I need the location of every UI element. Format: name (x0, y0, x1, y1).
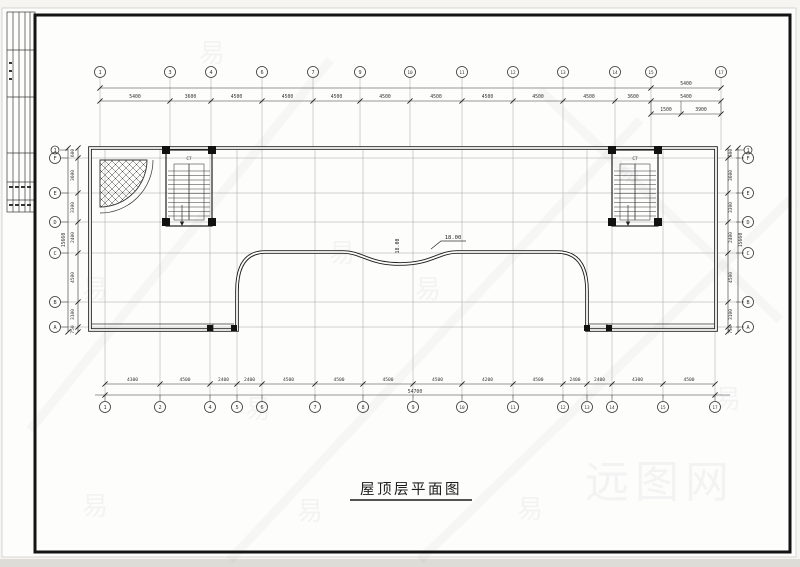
dim-text: 8 (361, 405, 364, 411)
dim-text: 3900 (695, 107, 707, 113)
dim-text: 4500 (683, 377, 694, 383)
stair-label: C7 (632, 156, 638, 162)
dim-text: 5400 (680, 81, 692, 87)
dim-text: 9 (358, 70, 361, 76)
dim-text: 3300 (728, 202, 734, 213)
scan-edge (0, 559, 800, 567)
dim-text: 1500 (660, 107, 672, 113)
glyph-watermark: 易 (82, 492, 108, 522)
dim-text: 4500 (532, 94, 544, 100)
dim-text: 4200 (482, 377, 493, 383)
dim-text: 11 (459, 70, 465, 76)
dim-text: 4500 (231, 94, 243, 100)
dim-text: 4500 (379, 94, 391, 100)
dim-text: 7 (313, 405, 316, 411)
dim-text: 12 (560, 405, 566, 411)
glyph-watermark: 易 (297, 497, 323, 527)
dim-text: 14 (612, 70, 618, 76)
dim-text: 3600 (728, 170, 734, 181)
dim-text: 54700 (408, 389, 423, 395)
column (208, 218, 216, 226)
dim-text: B (53, 300, 56, 306)
dim-text: 5 (235, 405, 238, 411)
dim-text: 12 (510, 70, 516, 76)
dim-text: 1 (103, 405, 106, 411)
dim-text: 3600 (627, 94, 639, 100)
dim-text: 14 (609, 405, 615, 411)
dim-text: 4500 (333, 377, 344, 383)
column (654, 218, 662, 226)
dim-text: 4500 (482, 94, 494, 100)
dim-text: 2400 (728, 232, 734, 243)
column (608, 146, 616, 154)
dim-text: D (53, 220, 56, 226)
dim-text: 15 (648, 70, 654, 76)
glyph-watermark: 易 (199, 39, 225, 69)
dim-text: 4500 (283, 377, 294, 383)
dim-text: C (746, 251, 749, 257)
dim-text: 2 (158, 405, 161, 411)
dim-text: F (746, 156, 749, 162)
dim-text: 6 (260, 70, 263, 76)
dim-text: 13 (584, 405, 590, 411)
dim-text: 4500 (728, 272, 734, 283)
dim-text: 4500 (179, 377, 190, 383)
dim-text: 750 (70, 325, 76, 334)
elevation-flag-text: 18.00 (445, 235, 462, 241)
cad-sheet: 易易易易易易易易易易 54003600450045004500450045 (0, 0, 800, 567)
dim-text: 15660 (61, 233, 67, 248)
dim-text: 11 (510, 405, 516, 411)
stair-label: C7 (186, 156, 192, 162)
dim-text: 4500 (331, 94, 343, 100)
dim-text: 4500 (432, 377, 443, 383)
dim-text: 4500 (282, 94, 294, 100)
dim-text: 2400 (594, 377, 605, 383)
dim-text: D (746, 220, 749, 226)
dim-text: E (746, 191, 749, 197)
dim-text: 4300 (632, 377, 643, 383)
column (208, 146, 216, 154)
dim-text: 4 (208, 405, 211, 411)
column (162, 218, 170, 226)
dim-text: 3100 (70, 309, 76, 320)
dim-text: 6 (260, 405, 263, 411)
dim-text: 750 (728, 325, 734, 334)
dim-text: 2400 (70, 232, 76, 243)
column (608, 218, 616, 226)
dim-text: 10 (407, 70, 413, 76)
dim-text: 4300 (127, 377, 138, 383)
dim-text: 3600 (185, 94, 197, 100)
dim-text: 3100 (728, 309, 734, 320)
dim-text: 3600 (70, 170, 76, 181)
dim-text: 5400 (129, 94, 141, 100)
dim-text: 600 (728, 149, 734, 158)
dim-text: 4500 (70, 272, 76, 283)
dim-text: 2400 (244, 377, 255, 383)
dim-text: 4500 (532, 377, 543, 383)
dim-text: 9 (411, 405, 414, 411)
logo-watermark-text: 远图网 (585, 457, 735, 508)
dim-text: 5400 (680, 94, 692, 100)
dim-text: 17 (712, 405, 718, 411)
glyph-watermark: 易 (415, 275, 441, 305)
drawing-title-text: 屋顶层平面图 (360, 482, 462, 498)
drawing-title: 屋顶层平面图 (350, 482, 472, 500)
dim-text: 15660 (738, 233, 744, 248)
dim-text: 600 (70, 149, 76, 158)
dim-text: F (53, 156, 56, 162)
glyph-watermark: 易 (245, 395, 271, 425)
dim-text: 13 (560, 70, 566, 76)
column (162, 146, 170, 154)
dim-text: 3300 (70, 202, 76, 213)
dim-text: C (53, 251, 56, 257)
dim-text: 4500 (430, 94, 442, 100)
dim-text: 17 (718, 70, 724, 76)
dim-text: 4500 (382, 377, 393, 383)
dim-text: 3 (168, 70, 171, 76)
dim-text: 7 (311, 70, 314, 76)
elevation-vertical-text: 18.00 (395, 238, 401, 253)
column (654, 146, 662, 154)
dim-text: 2400 (569, 377, 580, 383)
glyph-watermark: 易 (82, 275, 108, 305)
dim-text: 4500 (583, 94, 595, 100)
dim-text: 4 (209, 70, 212, 76)
dim-text: B (746, 300, 749, 306)
dim-text: 10 (459, 405, 465, 411)
dim-text: 15 (660, 405, 666, 411)
glyph-watermark: 易 (517, 495, 543, 525)
dim-text: 1 (98, 70, 101, 76)
dim-text: E (53, 191, 56, 197)
dim-text: 2400 (218, 377, 229, 383)
